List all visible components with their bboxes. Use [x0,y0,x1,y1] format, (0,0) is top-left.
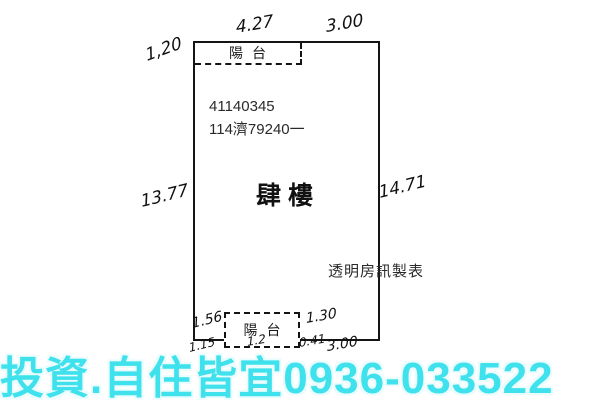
maker-credit: 透明房訊製表 [328,260,424,281]
watermark-text: 投資.自住皆宜0936-033522 [0,342,602,400]
top-balcony-label: 陽台 [220,43,275,63]
dim-top-left-offset: 1,20 [144,33,184,66]
dim-top-right-width: 3.00 [325,10,364,37]
registration-number-1: 41140345 [209,98,275,115]
top-balcony-box: 陽台 [195,43,302,65]
dim-top-balcony-width: 4.27 [235,11,274,38]
floor-label: 肆樓 [256,176,320,212]
dim-left-height: 13.77 [140,180,190,212]
dim-right-height: 14.71 [378,171,428,203]
floor-plan-page: 陽台 陽台 41140345 114濟79240一 肆樓 透明房訊製表 1,20… [0,0,602,400]
registration-number-2: 114濟79240一 [209,118,305,139]
